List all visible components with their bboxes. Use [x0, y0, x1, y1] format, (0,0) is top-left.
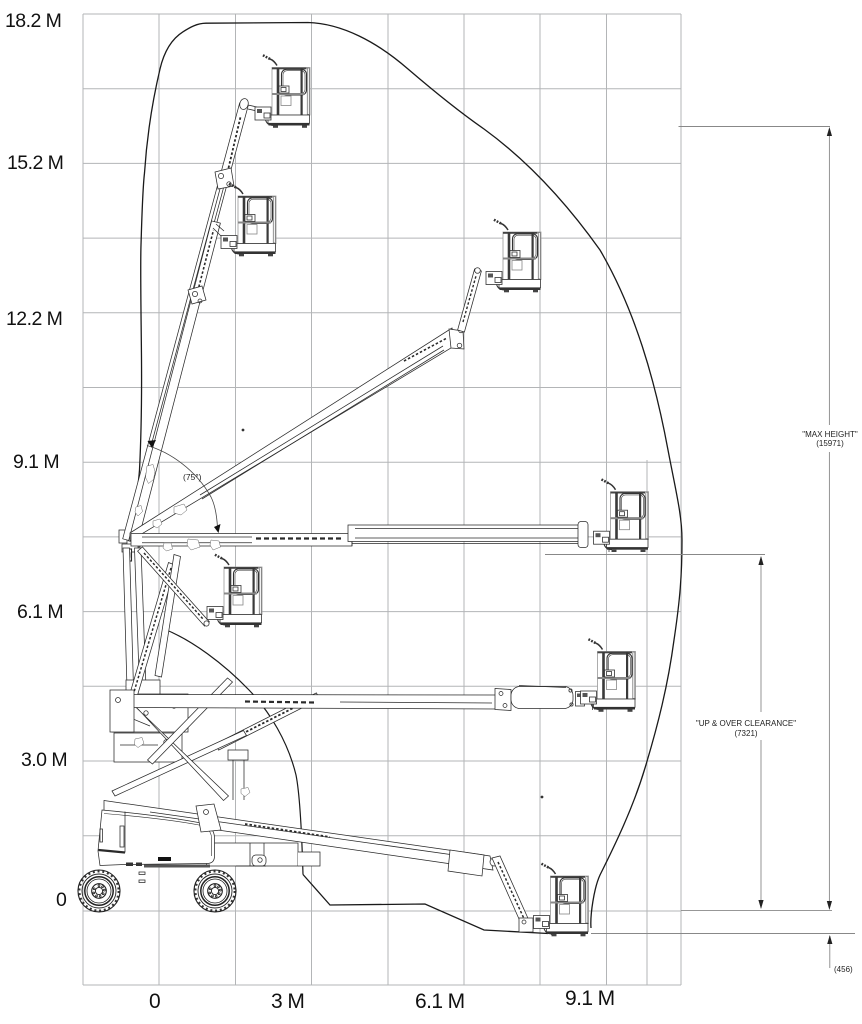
svg-text:(456): (456) — [834, 965, 853, 974]
svg-text:(7321): (7321) — [734, 729, 757, 738]
svg-text:0: 0 — [149, 990, 160, 1013]
svg-text:12.2 M: 12.2 M — [6, 308, 62, 330]
svg-text:"UP & OVER CLEARANCE": "UP & OVER CLEARANCE" — [696, 719, 796, 728]
svg-text:(15971): (15971) — [816, 439, 844, 448]
svg-text:"MAX HEIGHT": "MAX HEIGHT" — [802, 430, 858, 439]
svg-text:3 M: 3 M — [271, 990, 304, 1013]
svg-text:9.1 M: 9.1 M — [13, 451, 59, 473]
svg-text:9.1 M: 9.1 M — [565, 987, 615, 1010]
svg-text:0: 0 — [56, 889, 67, 911]
svg-text:6.1 M: 6.1 M — [415, 990, 465, 1013]
svg-text:(75°): (75°) — [183, 472, 202, 482]
svg-text:3.0 M: 3.0 M — [21, 749, 67, 771]
svg-text:15.2 M: 15.2 M — [7, 152, 63, 174]
svg-text:6.1 M: 6.1 M — [17, 601, 63, 623]
svg-text:18.2 M: 18.2 M — [5, 10, 61, 32]
